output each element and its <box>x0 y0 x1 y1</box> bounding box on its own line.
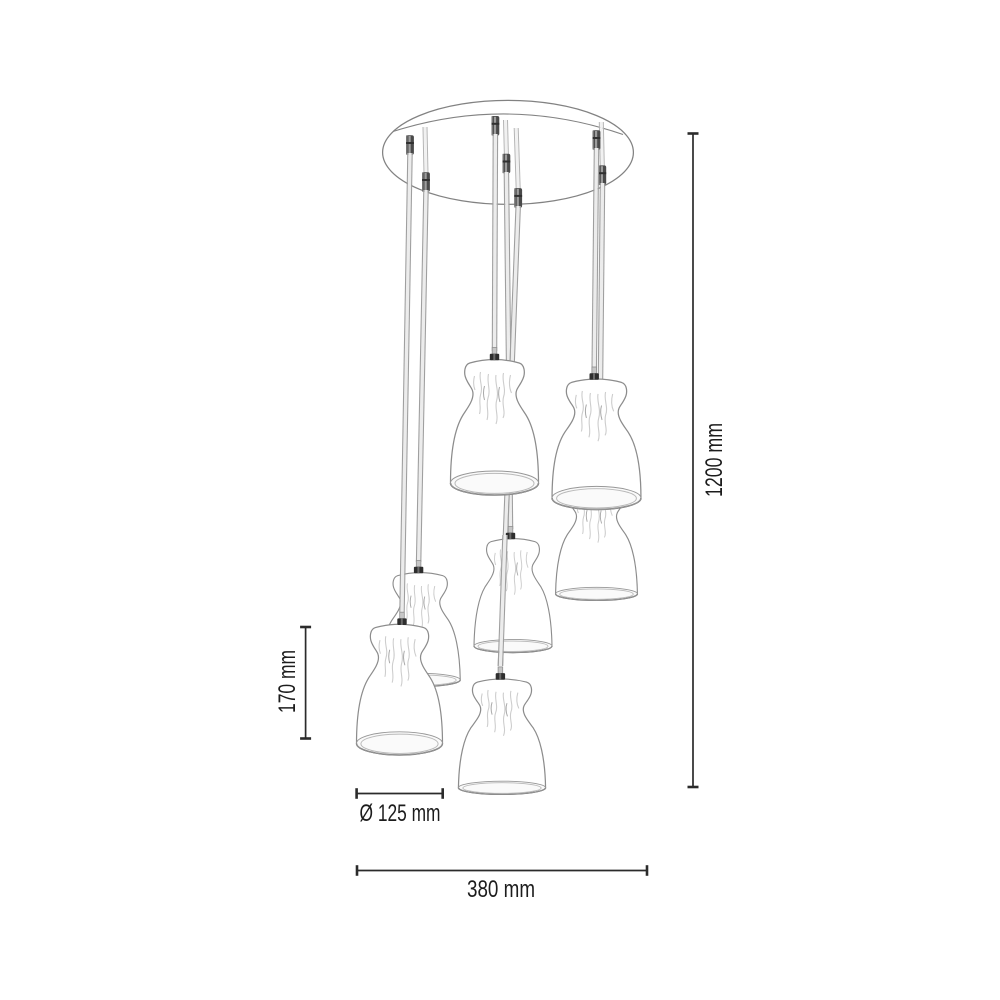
svg-text:1200 mm: 1200 mm <box>701 423 728 497</box>
svg-text:Ø 125 mm: Ø 125 mm <box>360 800 441 827</box>
svg-text:380 mm: 380 mm <box>467 876 535 903</box>
svg-text:170 mm: 170 mm <box>274 650 301 713</box>
